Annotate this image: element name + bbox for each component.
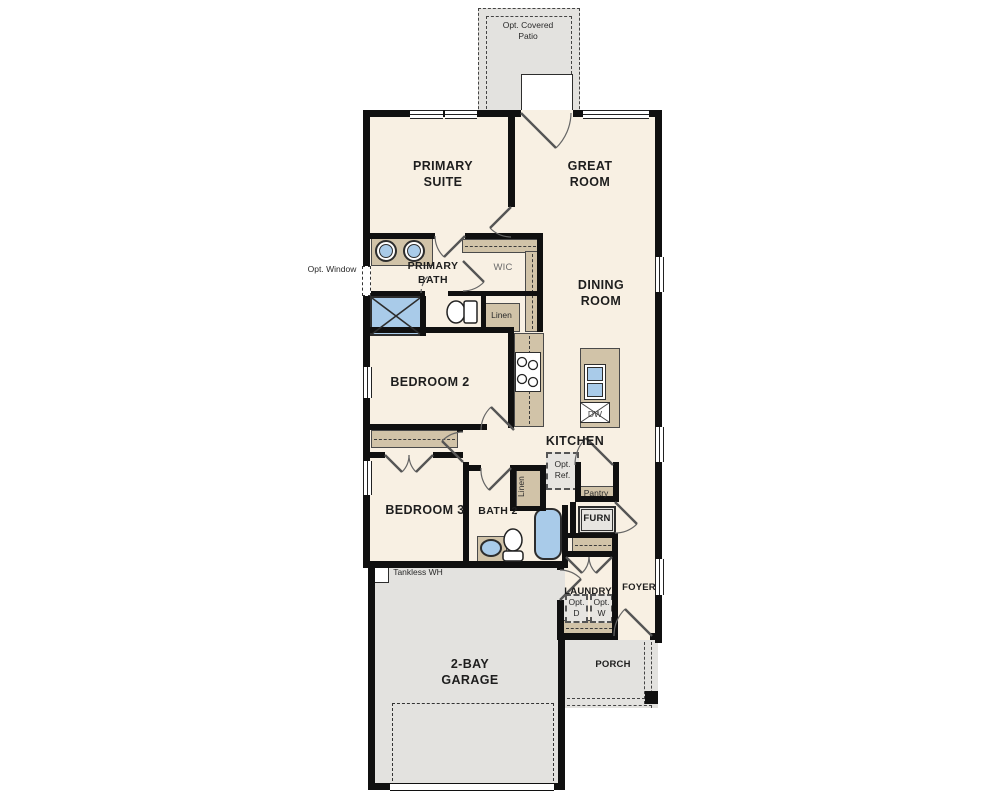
wall [465,233,543,239]
window [445,110,477,119]
bath2-sink-counter [477,536,507,563]
opt-window [362,266,371,296]
window [583,110,616,119]
room-label-dining-room: DINING ROOM [570,277,632,310]
garage-driveway-dashed [392,703,554,786]
room-label-foyer: FOYER [618,582,660,594]
island-sink-basin [587,383,603,397]
window [655,257,664,292]
patio-label: Opt. Covered Patio [492,20,564,42]
wall [481,424,487,430]
wall [448,291,543,296]
tankless-water-heater [374,566,389,583]
wall [557,600,564,640]
window [410,110,443,119]
front-door-opening [618,633,650,640]
garage-door-opening [390,784,554,791]
linen-bath2-label: Linen [516,470,540,504]
wall [650,633,662,640]
bedroom3-closet-shelf [371,430,458,448]
porch-post [645,691,658,704]
room-label-primary-suite: PRIMARY SUITE [405,158,481,191]
wall [566,533,618,538]
wall [363,424,481,430]
island-sink-basin [587,367,603,381]
room-label-bedroom3: BEDROOM 3 [372,502,478,518]
coat-closet-shelf [572,537,614,552]
dishwasher-label: DW [580,409,610,420]
porch-dashed-line [567,698,645,699]
wall [368,563,375,788]
wall [537,233,543,332]
tankless-wh-label: Tankless WH [391,567,445,578]
wall [557,633,618,640]
wall [508,117,515,207]
floor-plan: Opt. Covered Patio DW Opt. Ref. Opt. D O… [0,0,1000,800]
wall [433,452,463,458]
window [616,110,649,119]
opt-dryer-label: Opt. D [566,597,587,619]
linen-hall-label: Linen [485,310,518,321]
opt-ref-label: Opt. Ref. [548,459,577,481]
wall [469,465,481,471]
wall [363,110,370,568]
patio-door-landing [521,74,573,112]
room-label-wic: WIC [488,262,518,274]
window [363,461,372,495]
wall [367,291,425,296]
pantry-label: Pantry [577,488,615,499]
room-label-great-room: GREAT ROOM [555,158,625,191]
room-label-porch: PORCH [588,659,638,671]
room-label-laundry: LAUNDRY [558,586,618,598]
bathtub [534,508,562,560]
furnace-label: FURN [578,513,616,525]
window [655,427,664,462]
wall [557,563,564,570]
range [515,352,541,392]
porch-dashed-line [567,705,652,706]
opt-washer-label: Opt. W [591,597,612,619]
room-label-bath2: BATH 2 [478,505,518,519]
patio-door-opening [521,110,573,117]
wall [540,465,546,511]
opt-window-label: Opt. Window [306,264,358,275]
wall [566,551,618,557]
room-label-kitchen: KITCHEN [540,433,610,449]
window [363,367,372,398]
wall [367,233,435,239]
wall [363,452,385,458]
wall [558,640,565,788]
room-label-primary-bath: PRIMARY BATH [398,260,468,287]
wall [363,327,514,333]
room-label-garage: 2-BAY GARAGE [430,656,510,689]
wall [508,333,514,428]
wall [457,424,463,432]
room-label-bedroom2: BEDROOM 2 [375,374,485,390]
